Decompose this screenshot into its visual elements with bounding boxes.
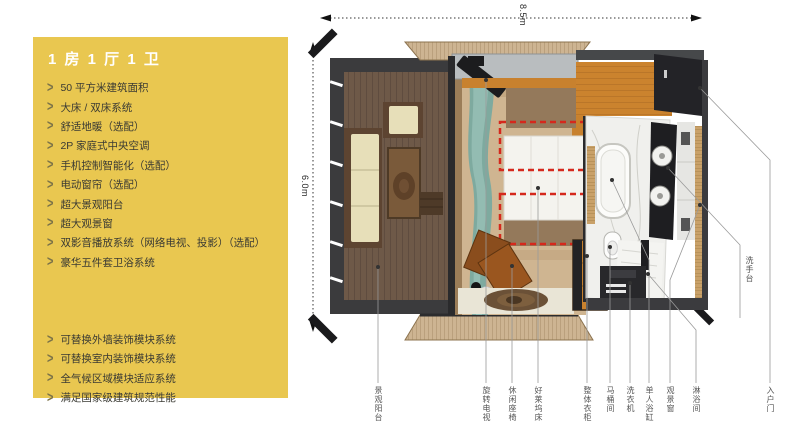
callout-washbasin: 洗手台: [743, 256, 753, 283]
callout-chair: 休闲座椅: [506, 386, 516, 422]
dim-height-label: 6.0m: [300, 175, 310, 197]
entry-wardrobe: [654, 54, 702, 116]
balcony: [330, 58, 460, 314]
callout-entry: 入户门: [764, 386, 774, 413]
callout-bed: 好莱坞床: [532, 386, 542, 422]
floor-plan: [0, 0, 800, 430]
callout-balcony: 景观阳台: [372, 386, 382, 422]
page: 1 房 1 厅 1 卫 >50 平方米建筑面积 >大床 / 双床系统 >舒适地暖…: [0, 0, 800, 430]
dimension-height: [310, 42, 317, 332]
bathroom: [576, 50, 708, 310]
dimension-width: [320, 15, 702, 22]
callout-toilet: 马桶间: [604, 386, 614, 413]
callout-window: 观景窗: [664, 386, 674, 413]
callout-washer: 洗衣机: [624, 386, 634, 413]
stool: [420, 192, 443, 215]
callout-shower: 淋浴间: [690, 386, 700, 413]
sofa: [344, 128, 382, 248]
vanity: [649, 122, 677, 240]
callout-tv: 旋转电视: [480, 386, 490, 422]
bed: [504, 136, 586, 220]
armchair: [383, 102, 423, 138]
callout-wardrobe: 整体衣柜: [581, 386, 591, 422]
callout-bathtub: 单人浴缸: [643, 386, 653, 422]
coffee-table: [388, 148, 420, 218]
washing-machine: [600, 266, 646, 302]
bottom-canopy: [405, 315, 593, 340]
roof-beam: [308, 28, 338, 58]
dim-width-label: 8.5m: [518, 4, 528, 26]
headboard-wall: [462, 78, 576, 88]
